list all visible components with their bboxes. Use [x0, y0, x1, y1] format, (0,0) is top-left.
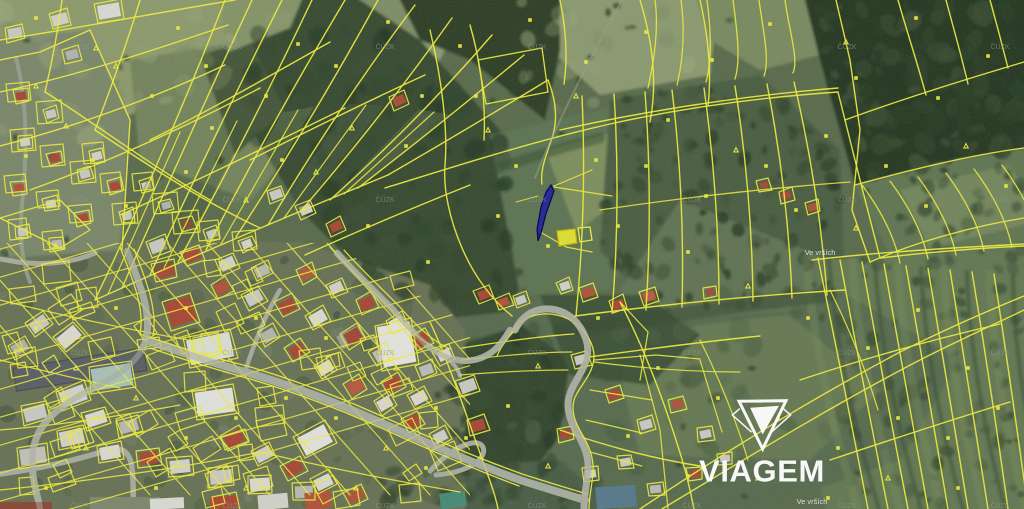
svg-text:ČÚZK: ČÚZK — [837, 195, 856, 204]
svg-text:ČÚZK: ČÚZK — [375, 348, 394, 357]
svg-text:ČÚZK: ČÚZK — [837, 348, 856, 357]
svg-text:ČÚZK: ČÚZK — [527, 42, 546, 51]
svg-text:ČÚZK: ČÚZK — [222, 42, 241, 51]
svg-text:ČÚZK: ČÚZK — [70, 42, 89, 51]
svg-text:ČÚZK: ČÚZK — [682, 42, 701, 51]
svg-text:ČÚZK: ČÚZK — [375, 42, 394, 51]
svg-text:ČÚZK: ČÚZK — [527, 501, 546, 509]
svg-text:VIAGEM: VIAGEM — [699, 454, 825, 489]
svg-text:ČÚZK: ČÚZK — [527, 195, 546, 204]
svg-text:ČÚZK: ČÚZK — [222, 501, 241, 509]
svg-text:ČÚZK: ČÚZK — [990, 348, 1009, 357]
svg-text:ČÚZK: ČÚZK — [990, 501, 1009, 509]
svg-text:ČÚZK: ČÚZK — [682, 501, 701, 509]
svg-text:ČÚZK: ČÚZK — [70, 501, 89, 509]
svg-text:ČÚZK: ČÚZK — [222, 195, 241, 204]
svg-text:Ve vrších: Ve vrších — [797, 497, 828, 506]
svg-text:ČÚZK: ČÚZK — [990, 42, 1009, 51]
svg-text:ČÚZK: ČÚZK — [375, 501, 394, 509]
svg-text:ČÚZK: ČÚZK — [70, 348, 89, 357]
svg-text:ČÚZK: ČÚZK — [837, 42, 856, 51]
svg-text:ČÚZK: ČÚZK — [837, 501, 856, 509]
svg-text:ČÚZK: ČÚZK — [990, 195, 1009, 204]
svg-text:ČÚZK: ČÚZK — [70, 195, 89, 204]
svg-text:ČÚZK: ČÚZK — [682, 195, 701, 204]
svg-text:ČÚZK: ČÚZK — [375, 195, 394, 204]
svg-text:ČÚZK: ČÚZK — [222, 348, 241, 357]
svg-text:ČÚZK: ČÚZK — [682, 348, 701, 357]
svg-text:Ve vrších: Ve vrších — [805, 248, 836, 257]
svg-text:ČÚZK: ČÚZK — [527, 348, 546, 357]
